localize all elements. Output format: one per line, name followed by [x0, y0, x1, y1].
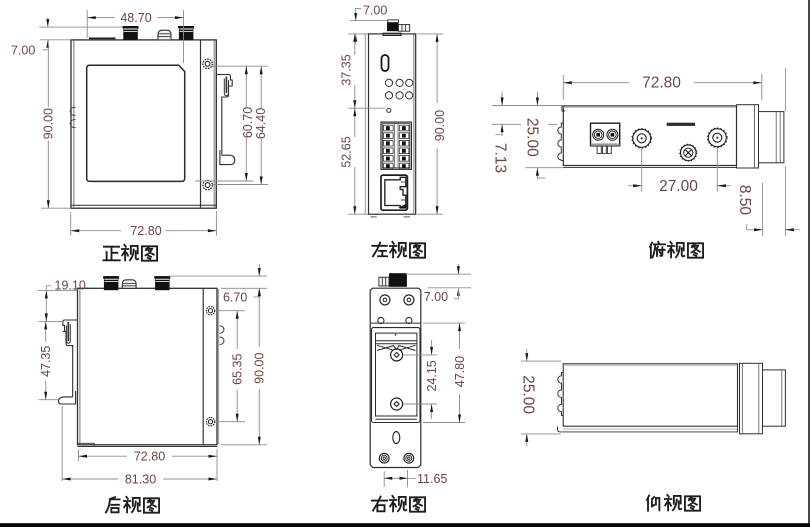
svg-text:48.70: 48.70: [120, 11, 151, 25]
svg-text:90.00: 90.00: [253, 353, 267, 384]
svg-text:60.70: 60.70: [241, 107, 255, 138]
svg-text:47.35: 47.35: [39, 346, 53, 377]
svg-text:8.50: 8.50: [736, 185, 753, 216]
svg-text:81.30: 81.30: [125, 473, 156, 487]
svg-text:7.00: 7.00: [11, 44, 35, 58]
svg-text:90.00: 90.00: [433, 110, 447, 141]
svg-text:72.80: 72.80: [130, 224, 161, 238]
svg-text:7.00: 7.00: [424, 290, 448, 304]
svg-text:64.40: 64.40: [254, 108, 268, 139]
svg-text:24.15: 24.15: [425, 360, 439, 391]
svg-text:6.70: 6.70: [223, 291, 247, 305]
svg-text:90.00: 90.00: [42, 108, 56, 139]
svg-text:7.00: 7.00: [363, 4, 387, 18]
svg-text:72.80: 72.80: [134, 450, 165, 464]
svg-text:25.00: 25.00: [524, 118, 541, 157]
svg-text:25.00: 25.00: [520, 375, 537, 414]
svg-text:7.13: 7.13: [492, 143, 509, 173]
svg-text:52.65: 52.65: [340, 136, 354, 167]
svg-text:11.65: 11.65: [417, 472, 447, 486]
svg-text:72.80: 72.80: [642, 75, 681, 92]
svg-text:65.35: 65.35: [231, 354, 245, 385]
svg-text:47.80: 47.80: [453, 356, 467, 387]
svg-text:19.10: 19.10: [55, 279, 86, 293]
svg-text:37.35: 37.35: [340, 54, 354, 85]
svg-text:27.00: 27.00: [659, 178, 698, 195]
